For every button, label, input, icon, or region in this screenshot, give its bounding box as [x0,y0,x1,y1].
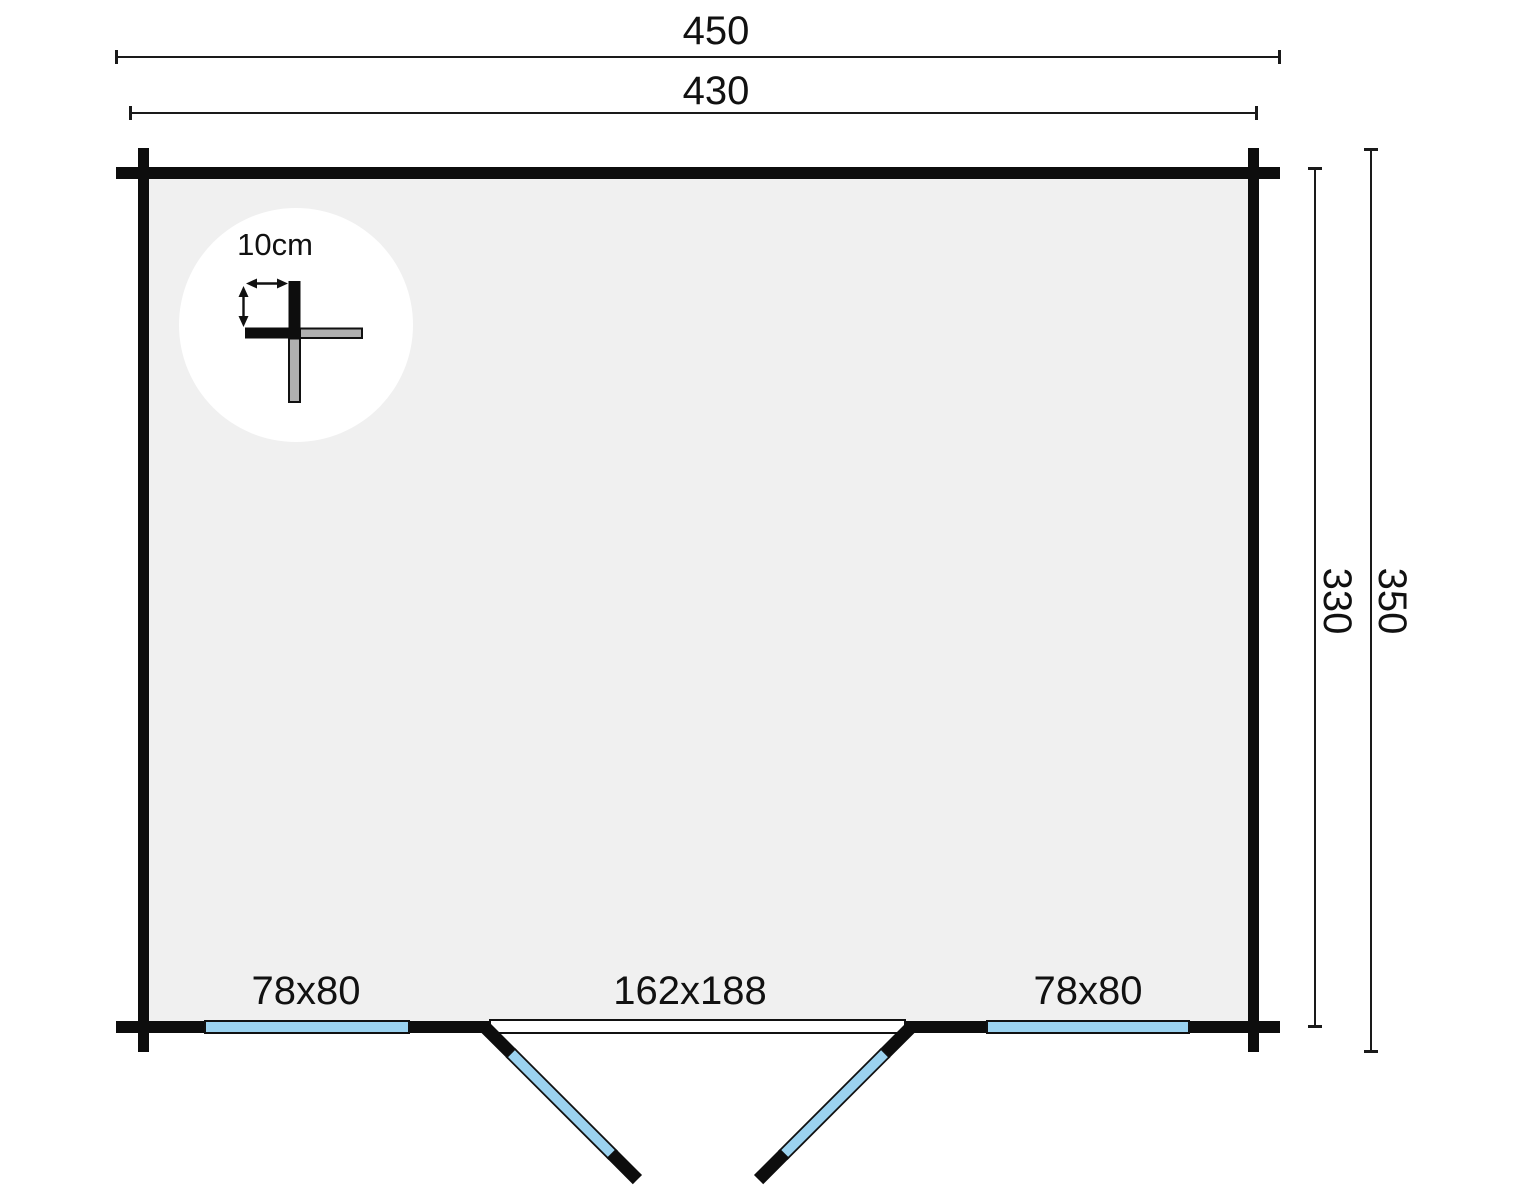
dim-tick [1364,1050,1378,1053]
door-panel-left [507,1049,617,1159]
dim-tick [1308,1025,1322,1028]
dim-label-inner-depth: 330 [1317,568,1357,635]
dim-tick [1364,148,1378,151]
dim-line [115,56,1281,58]
door-handle-end-left [607,1149,642,1184]
door-label: 162x188 [613,971,766,1011]
door-panel-right [779,1049,889,1159]
window-left-label: 78x80 [252,971,361,1011]
window-right [986,1020,1190,1034]
door-leaf-left [481,1023,642,1184]
dim-tick [1278,50,1281,64]
wall-left [138,148,149,1052]
door-leaf-right [754,1023,915,1184]
window-left [204,1020,410,1034]
dim-tick [129,106,132,120]
dim-tick [1308,167,1322,170]
dim-tick [115,50,118,64]
dim-label-outer-depth: 350 [1372,568,1412,635]
door-handle-end-right [754,1149,789,1184]
dim-label-inner-width: 430 [683,71,750,111]
dim-tick [1255,106,1258,120]
wall-top [116,167,1280,179]
floor-plan-canvas: 450 430 330 350 78x80 162x188 78x80 10cm [0,0,1530,1188]
door-opening-frame [489,1019,906,1034]
wall-right [1248,148,1259,1052]
wall-thickness-label: 10cm [237,229,313,260]
window-right-label: 78x80 [1034,971,1143,1011]
dim-label-outer-width: 450 [683,11,750,51]
